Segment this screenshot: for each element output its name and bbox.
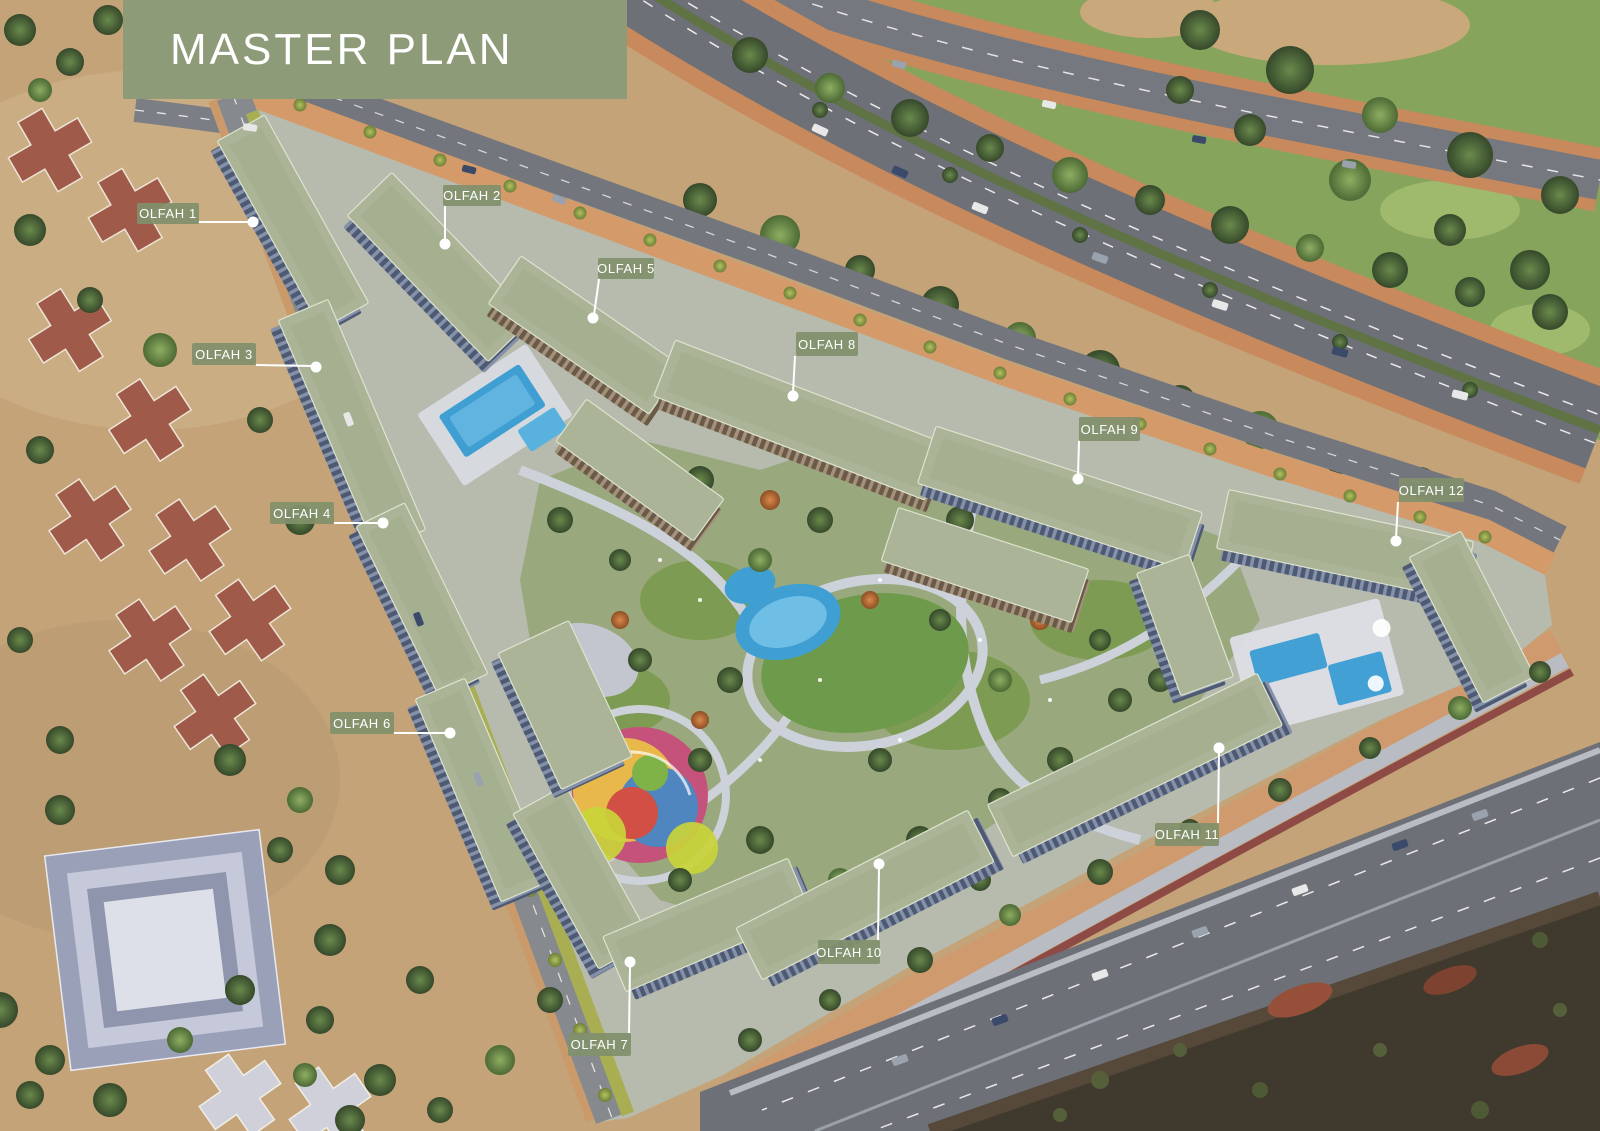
- building-label-olfah-3[interactable]: OLFAH 3: [192, 343, 256, 365]
- masterplan-page: OLFAH 1OLFAH 2OLFAH 3OLFAH 4OLFAH 5OLFAH…: [0, 0, 1600, 1131]
- building-labels-layer: OLFAH 1OLFAH 2OLFAH 3OLFAH 4OLFAH 5OLFAH…: [0, 0, 1600, 1131]
- building-label-olfah-1[interactable]: OLFAH 1: [137, 203, 199, 224]
- building-label-olfah-4[interactable]: OLFAH 4: [270, 502, 334, 524]
- building-label-olfah-6[interactable]: OLFAH 6: [330, 712, 394, 734]
- building-label-olfah-11[interactable]: OLFAH 11: [1155, 823, 1219, 846]
- building-label-olfah-9[interactable]: OLFAH 9: [1079, 417, 1140, 441]
- masterplan-title-banner: MASTER PLAN: [123, 0, 627, 99]
- building-label-olfah-8[interactable]: OLFAH 8: [796, 332, 858, 356]
- page-title: MASTER PLAN: [123, 25, 514, 75]
- building-label-olfah-2[interactable]: OLFAH 2: [443, 185, 501, 206]
- building-label-olfah-12[interactable]: OLFAH 12: [1399, 478, 1464, 502]
- building-label-olfah-10[interactable]: OLFAH 10: [818, 940, 880, 964]
- building-label-olfah-5[interactable]: OLFAH 5: [598, 258, 654, 279]
- building-label-olfah-7[interactable]: OLFAH 7: [568, 1033, 631, 1056]
